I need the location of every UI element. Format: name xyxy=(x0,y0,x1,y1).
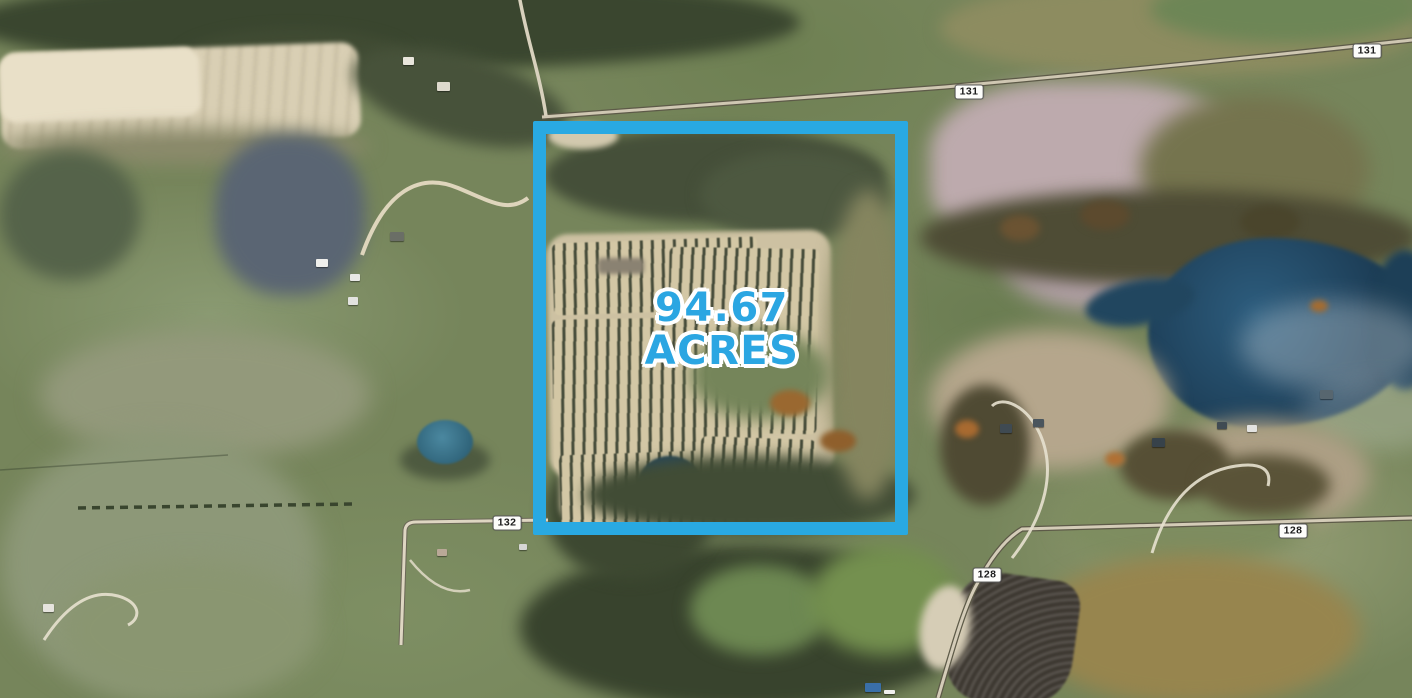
driveway-loop-2 xyxy=(1152,465,1269,553)
acreage-value: 94.67 xyxy=(560,287,884,330)
building xyxy=(1320,390,1333,399)
road-128-casing xyxy=(938,518,1412,698)
building xyxy=(1217,422,1227,429)
satellite-map[interactable]: 94.67 ACRES 131 131 132 128 128 xyxy=(0,0,1412,698)
driveway-4 xyxy=(410,560,470,591)
building-blue-roof xyxy=(865,683,881,692)
acreage-unit: ACRES xyxy=(560,330,884,373)
building xyxy=(437,549,447,556)
building xyxy=(403,57,414,65)
building xyxy=(316,259,328,267)
building xyxy=(43,604,54,612)
driveway-loop-3 xyxy=(44,594,137,640)
building xyxy=(390,232,404,241)
driveway-s-curve xyxy=(362,183,528,255)
fence-line xyxy=(0,455,228,470)
road-shield-text: 128 xyxy=(1284,525,1303,537)
road-top-spur xyxy=(519,0,546,116)
road-shield-131-west: 131 xyxy=(955,85,984,100)
road-shield-text: 132 xyxy=(498,517,517,529)
road-128 xyxy=(938,518,1412,698)
road-shield-text: 131 xyxy=(1358,45,1377,57)
vehicles xyxy=(884,690,895,694)
road-132 xyxy=(401,520,548,645)
building xyxy=(437,82,450,91)
road-shield-131-east: 131 xyxy=(1353,44,1382,59)
road-shield-128-east: 128 xyxy=(1279,524,1308,539)
road-131-casing xyxy=(542,40,1412,117)
road-shield-text: 131 xyxy=(960,86,979,98)
building xyxy=(519,544,527,550)
building xyxy=(350,274,360,281)
acreage-label: 94.67 ACRES xyxy=(560,287,884,373)
building xyxy=(1000,424,1012,433)
building xyxy=(348,297,358,305)
hedgerow-line xyxy=(78,504,352,508)
building xyxy=(1033,419,1044,427)
road-shield-132: 132 xyxy=(493,516,522,531)
road-shield-text: 128 xyxy=(978,569,997,581)
building xyxy=(1247,425,1257,432)
road-shield-128-west: 128 xyxy=(973,568,1002,583)
road-132-casing xyxy=(401,520,548,645)
building xyxy=(1152,438,1165,447)
